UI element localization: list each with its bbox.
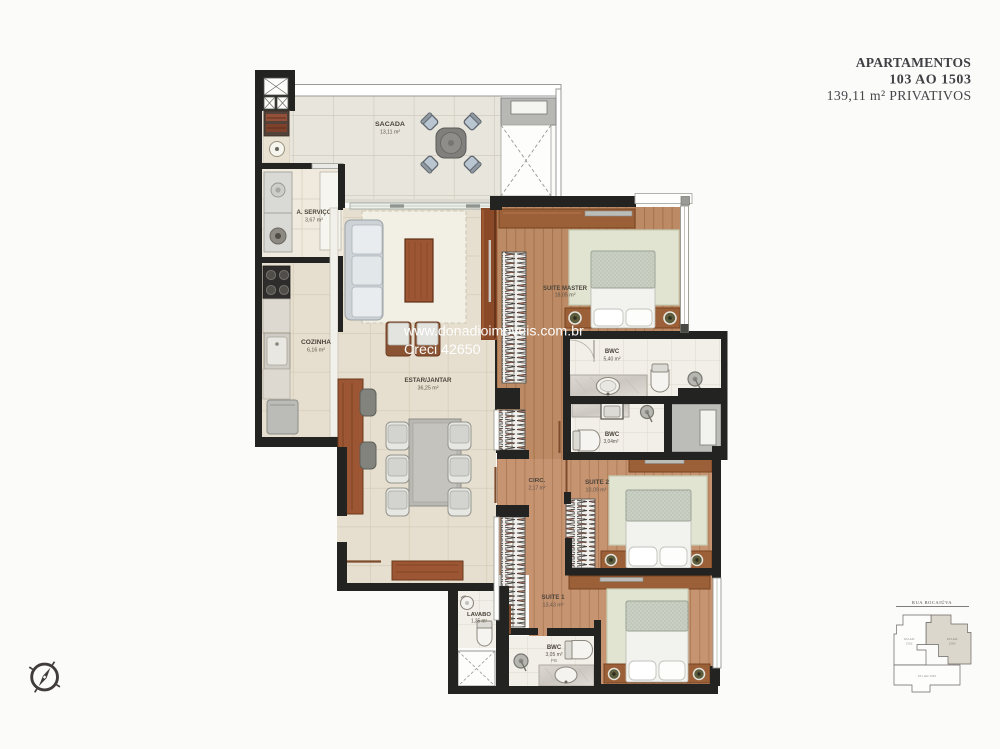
svg-text:103 AO 1503: 103 AO 1503: [889, 73, 971, 88]
svg-text:COZINHA: COZINHA: [301, 339, 331, 346]
svg-text:3,67 m²: 3,67 m²: [305, 218, 323, 224]
svg-text:101 AO 1501: 101 AO 1501: [918, 674, 937, 678]
svg-text:102 AO: 102 AO: [904, 637, 915, 641]
svg-text:103 AO: 103 AO: [947, 637, 958, 641]
svg-text:SUITE MASTER: SUITE MASTER: [543, 285, 587, 292]
svg-text:6,16 m²: 6,16 m²: [307, 348, 325, 354]
svg-text:www.donadioimoveis.com.br: www.donadioimoveis.com.br: [403, 324, 584, 340]
svg-text:1503: 1503: [949, 642, 956, 646]
svg-text:36,25 m²: 36,25 m²: [418, 386, 439, 392]
svg-text:BWC: BWC: [547, 645, 562, 651]
svg-text:13,11 m²: 13,11 m²: [380, 130, 400, 136]
svg-text:1502: 1502: [906, 642, 913, 646]
svg-text:LAVABO: LAVABO: [467, 612, 491, 618]
svg-text:18,05 m²: 18,05 m²: [555, 293, 576, 299]
svg-text:SUITE 2: SUITE 2: [585, 479, 609, 486]
svg-text:BWC: BWC: [605, 432, 620, 438]
svg-text:139,11 m² PRIVATIVOS: 139,11 m² PRIVATIVOS: [827, 88, 972, 103]
svg-text:5,40 m²: 5,40 m²: [604, 357, 621, 363]
svg-text:APARTAMENTOS: APARTAMENTOS: [856, 55, 971, 70]
svg-text:CIRC.: CIRC.: [529, 478, 546, 484]
svg-text:2,17 m²: 2,17 m²: [529, 486, 546, 492]
svg-text:10,09 m²: 10,09 m²: [586, 488, 607, 494]
svg-text:13,43 m²: 13,43 m²: [543, 603, 564, 609]
svg-text:SUITE 1: SUITE 1: [542, 594, 565, 601]
svg-text:BWC: BWC: [605, 349, 620, 355]
svg-text:3,04m²: 3,04m²: [604, 439, 619, 445]
svg-text:Creci 42650: Creci 42650: [404, 342, 481, 358]
svg-text:1,35 m²: 1,35 m²: [471, 619, 487, 625]
svg-text:ESTAR/JANTAR: ESTAR/JANTAR: [405, 377, 452, 384]
svg-text:PB: PB: [551, 658, 557, 663]
svg-text:A. SERVIÇO: A. SERVIÇO: [297, 209, 332, 216]
svg-text:SACADA: SACADA: [375, 121, 405, 128]
svg-text:RUA BOCAIÚVA: RUA BOCAIÚVA: [912, 600, 952, 605]
